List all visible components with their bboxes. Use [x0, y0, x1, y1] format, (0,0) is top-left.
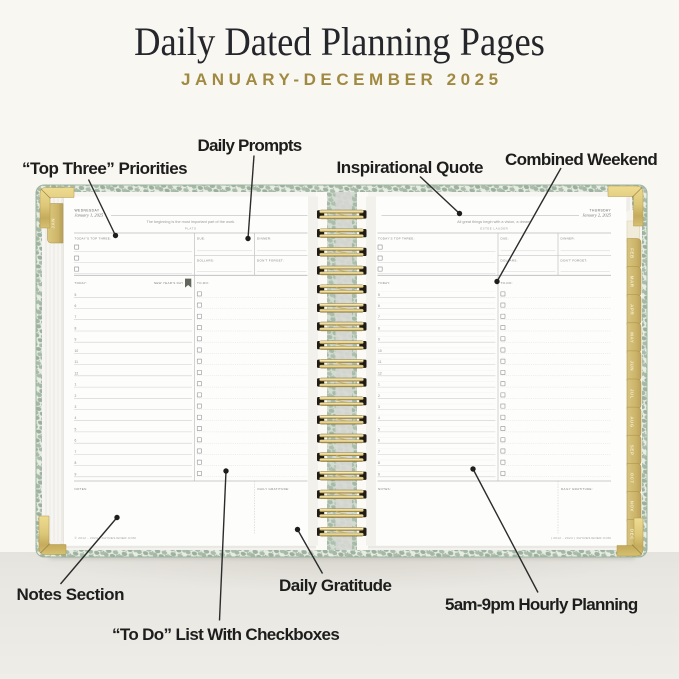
svg-text:5: 5	[75, 293, 77, 297]
svg-text:AUG: AUG	[630, 416, 635, 428]
svg-text:9: 9	[75, 472, 77, 476]
svg-text:6: 6	[75, 439, 77, 443]
svg-text:The beginning is the most impo: The beginning is the most important part…	[146, 220, 235, 224]
svg-text:6: 6	[378, 439, 380, 443]
svg-text:JUN: JUN	[630, 361, 635, 372]
svg-text:8: 8	[378, 327, 380, 331]
svg-text:TODAY’S TOP THREE:: TODAY’S TOP THREE:	[75, 236, 112, 240]
svg-text:8: 8	[378, 461, 380, 465]
svg-text:7: 7	[75, 315, 77, 319]
svg-text:7: 7	[75, 450, 77, 454]
svg-text:9: 9	[378, 338, 380, 342]
svg-text:2: 2	[75, 394, 77, 398]
svg-text:7: 7	[378, 450, 380, 454]
svg-text:DAILY GRATITUDE:: DAILY GRATITUDE:	[258, 487, 290, 491]
svg-text:12: 12	[378, 371, 382, 375]
svg-text:FEB: FEB	[630, 248, 635, 259]
svg-text:DON’T FORGET:: DON’T FORGET:	[561, 258, 588, 262]
svg-text:3: 3	[75, 405, 77, 409]
svg-text:SEP: SEP	[630, 445, 635, 456]
svg-text:5: 5	[75, 427, 77, 431]
svg-text:DON’T FORGET:: DON’T FORGET:	[257, 258, 284, 262]
svg-text:5: 5	[378, 293, 380, 297]
svg-text:PLATO: PLATO	[185, 227, 197, 231]
svg-text:7: 7	[378, 315, 380, 319]
svg-text:10: 10	[378, 349, 382, 353]
svg-text:6: 6	[75, 304, 77, 308]
svg-text:2: 2	[378, 394, 380, 398]
svg-text:NOTES:: NOTES:	[75, 487, 88, 491]
svg-text:| 2012 - 2024 | DAYDESIGNER.CO: | 2012 - 2024 | DAYDESIGNER.COM	[551, 536, 611, 540]
svg-text:5: 5	[378, 427, 380, 431]
svg-text:DUE:: DUE:	[197, 236, 205, 240]
svg-text:9: 9	[75, 338, 77, 342]
svg-text:TODAY:: TODAY:	[378, 281, 391, 285]
svg-text:TO-DO:: TO-DO:	[197, 281, 209, 285]
svg-text:NEW YEAR’S DAY: NEW YEAR’S DAY	[154, 281, 184, 285]
svg-text:TODAY:: TODAY:	[75, 281, 88, 285]
svg-text:APR: APR	[630, 304, 635, 315]
svg-text:10: 10	[75, 349, 79, 353]
svg-text:All great things begin with a: All great things begin with a vision, a …	[457, 220, 531, 224]
svg-text:DINNER:: DINNER:	[561, 236, 575, 240]
svg-text:1: 1	[75, 383, 77, 387]
svg-text:DAILY GRATITUDE:: DAILY GRATITUDE:	[561, 487, 593, 491]
svg-text:9: 9	[378, 472, 380, 476]
svg-text:JAN: JAN	[51, 218, 56, 229]
svg-text:DINNER:: DINNER:	[257, 236, 271, 240]
svg-text:8: 8	[75, 461, 77, 465]
svg-text:3: 3	[378, 405, 380, 409]
svg-text:11: 11	[378, 360, 382, 364]
svg-text:ESTEE LAUDER: ESTEE LAUDER	[480, 227, 508, 231]
svg-text:TO-DO:: TO-DO:	[501, 281, 513, 285]
svg-text:NOV: NOV	[630, 501, 635, 512]
svg-text:4: 4	[75, 416, 77, 420]
svg-text:MAY: MAY	[630, 332, 635, 343]
svg-text:JUL: JUL	[630, 389, 635, 399]
svg-text:© 2012 - 2024 | DAYDESIGNER.CO: © 2012 - 2024 | DAYDESIGNER.COM	[75, 536, 137, 540]
svg-text:OCT: OCT	[630, 473, 635, 484]
svg-text:4: 4	[378, 416, 380, 420]
svg-text:TODAY’S TOP THREE:: TODAY’S TOP THREE:	[378, 236, 415, 240]
svg-text:MAR: MAR	[630, 276, 635, 288]
svg-text:DOLLARS:: DOLLARS:	[197, 258, 214, 262]
svg-text:8: 8	[75, 327, 77, 331]
svg-text:DUE:: DUE:	[501, 236, 509, 240]
svg-text:11: 11	[75, 360, 79, 364]
svg-text:6: 6	[378, 304, 380, 308]
svg-text:1: 1	[378, 383, 380, 387]
svg-text:12: 12	[75, 371, 79, 375]
svg-text:NOTES:: NOTES:	[378, 487, 391, 491]
